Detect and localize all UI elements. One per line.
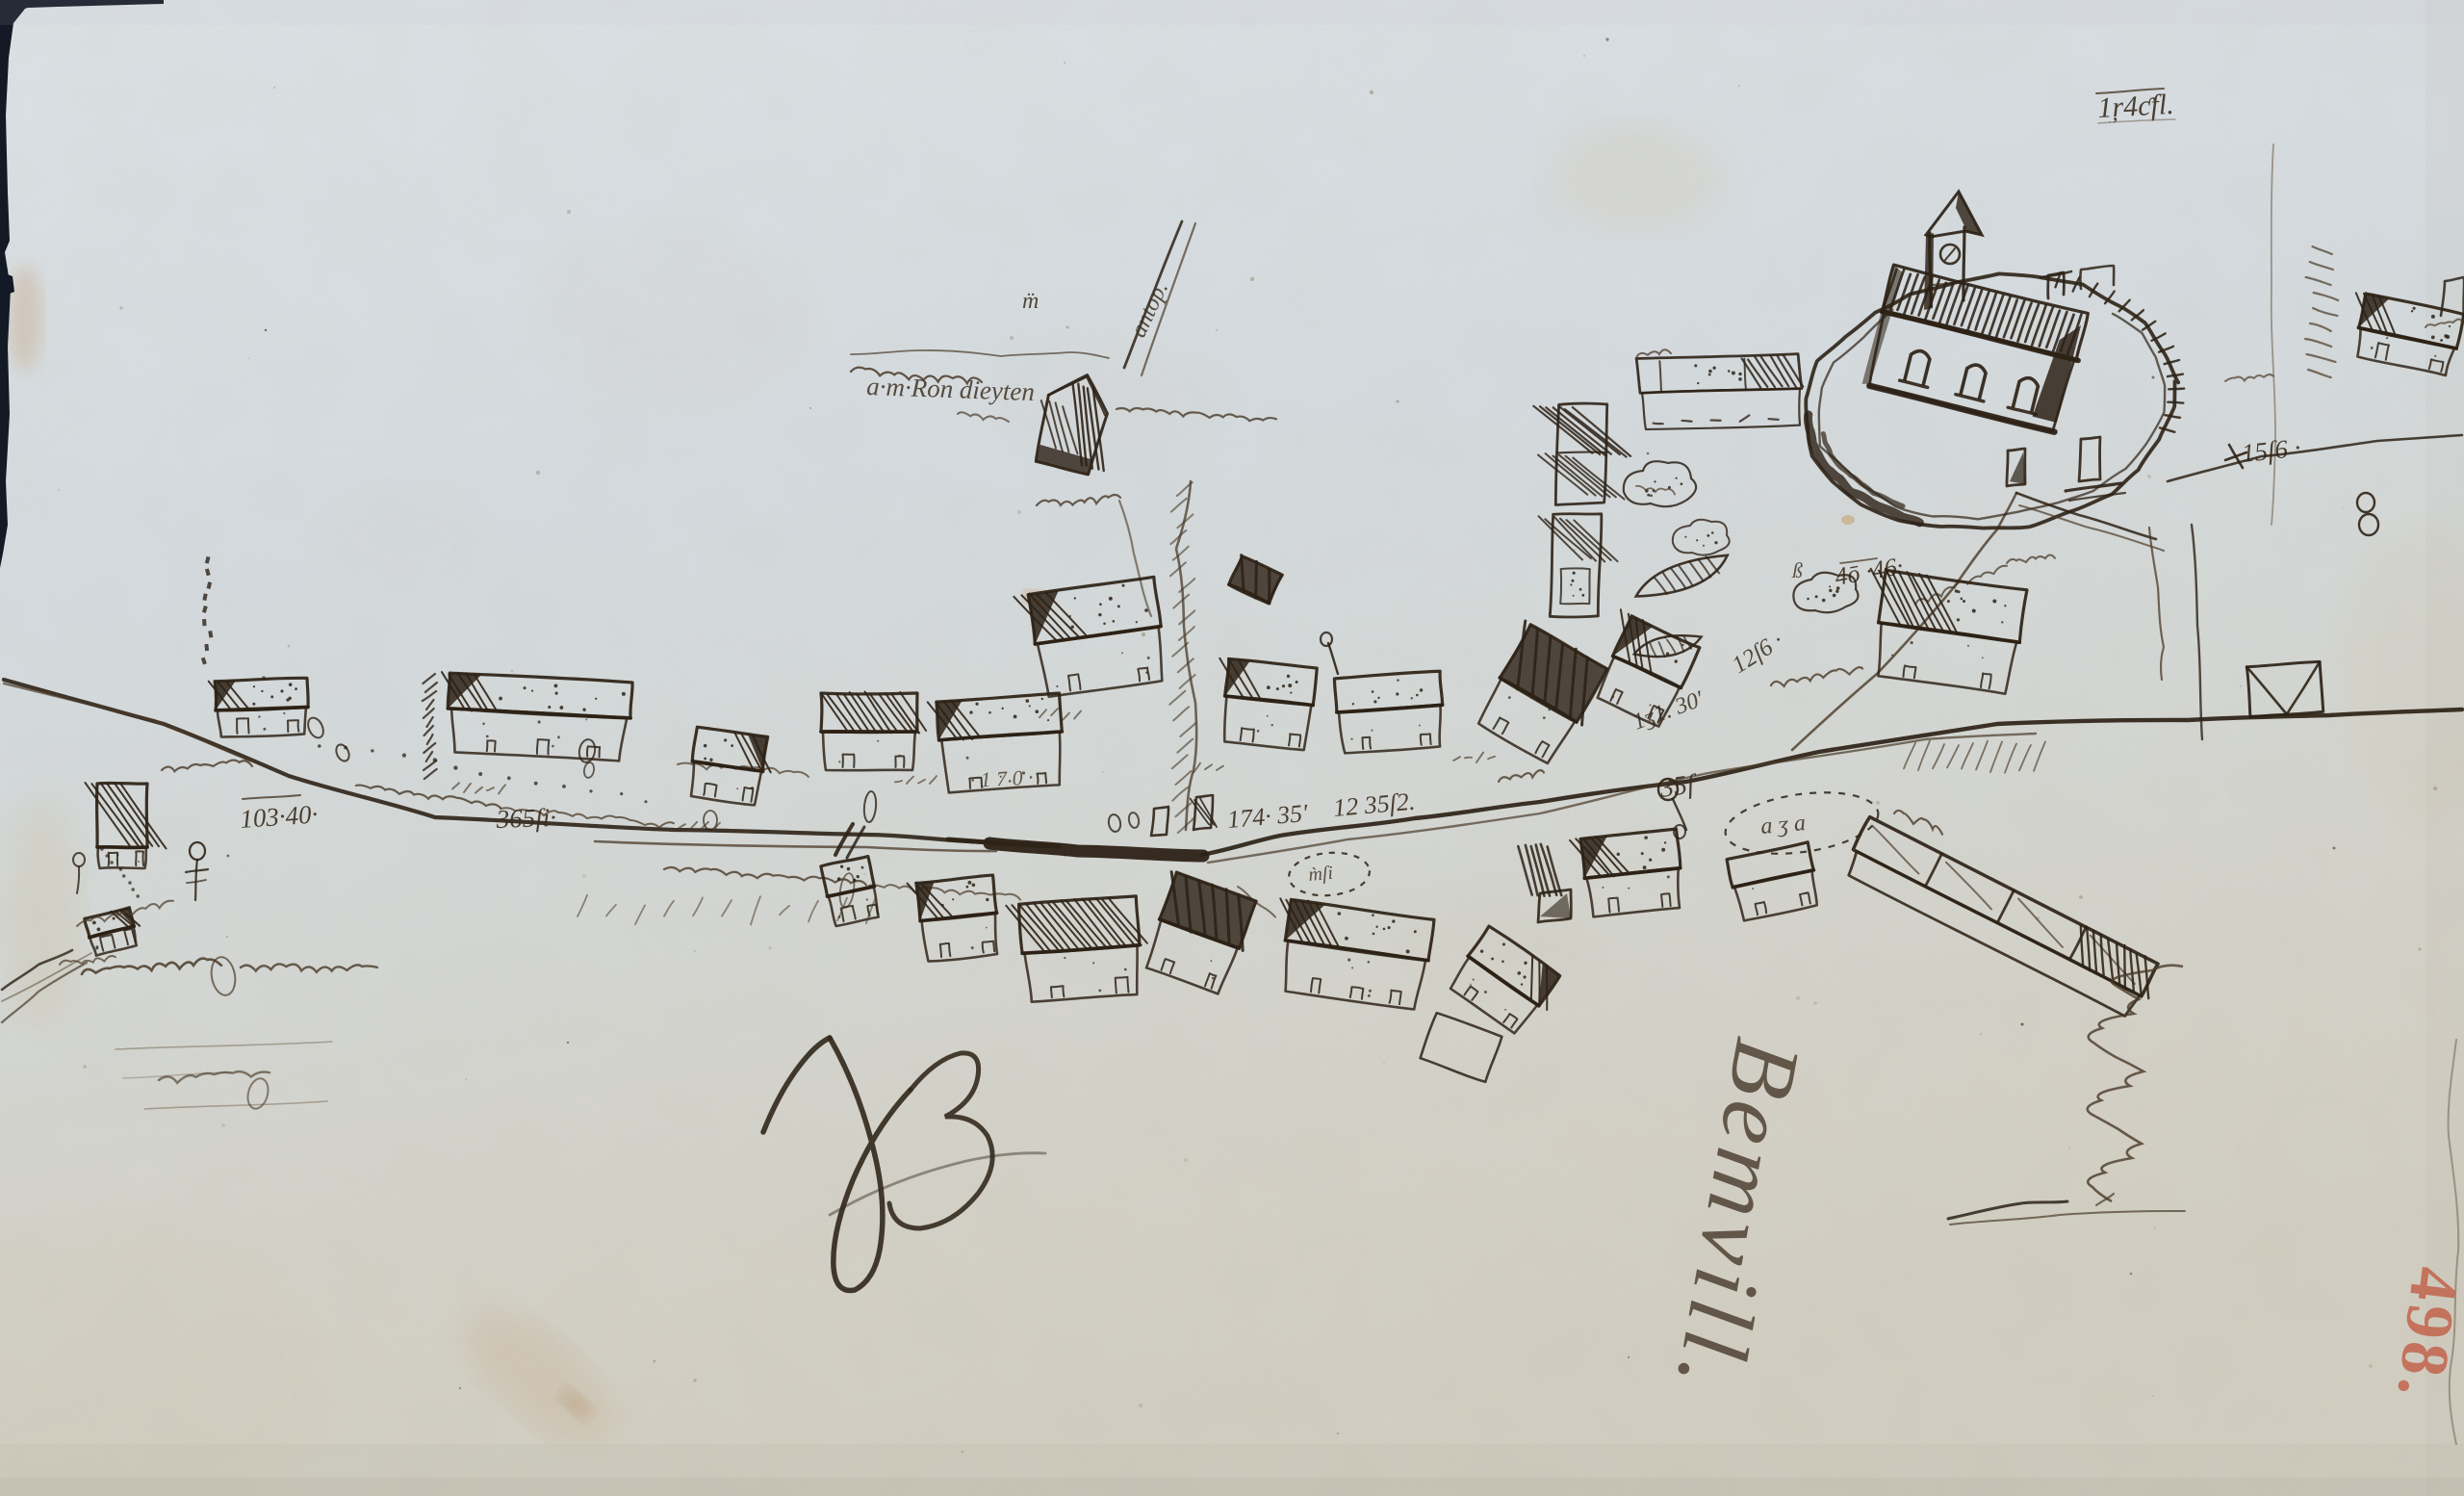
- svg-text:a·m·Ron dieyten: a·m·Ron dieyten: [866, 372, 1036, 406]
- svg-text:15ſ6 ·: 15ſ6 ·: [2240, 433, 2301, 468]
- svg-text:365ſi·: 365ſi·: [495, 803, 556, 834]
- svg-text:103·40·: 103·40·: [239, 799, 319, 834]
- svg-text:1ŗ4ƈfl.: 1ŗ4ƈfl.: [2097, 89, 2175, 124]
- svg-text:a ʒ a: a ʒ a: [1759, 811, 1807, 839]
- svg-text:m̀ſi: m̀ſi: [1308, 863, 1334, 886]
- svg-text:m̈: m̈: [1022, 289, 1039, 314]
- svg-text:ß: ß: [1791, 558, 1803, 582]
